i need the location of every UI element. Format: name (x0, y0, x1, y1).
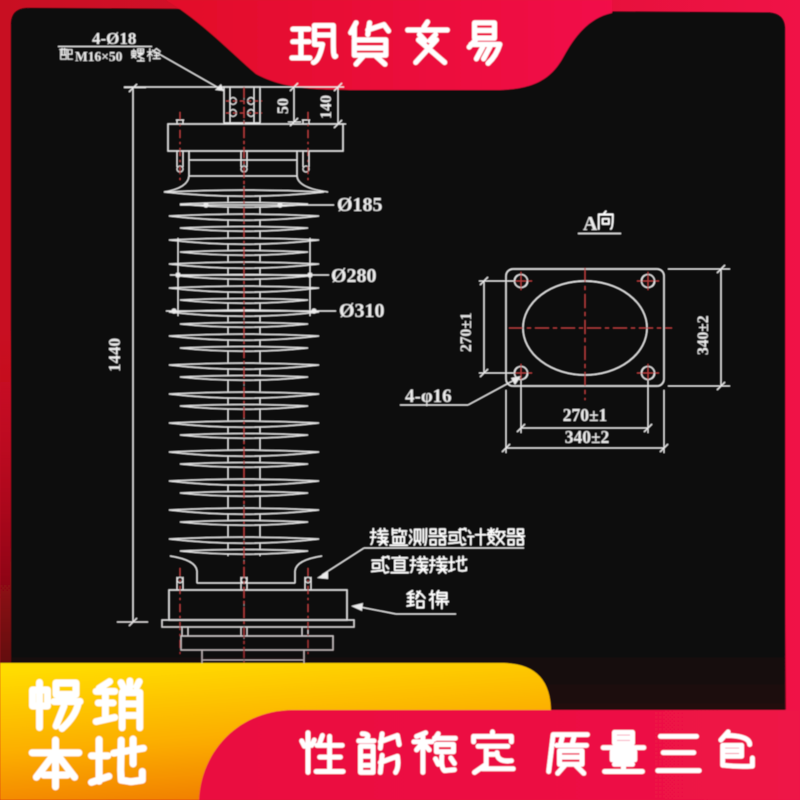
svg-text:140: 140 (318, 95, 335, 119)
svg-text:4-Ø18: 4-Ø18 (92, 29, 136, 48)
svg-text:Ø185: Ø185 (337, 194, 383, 216)
svg-text:270±1: 270±1 (458, 312, 475, 352)
svg-text:M16×50: M16×50 (75, 49, 123, 64)
svg-text:Ø310: Ø310 (339, 300, 385, 322)
svg-text:340±2: 340±2 (695, 315, 712, 355)
svg-text:50: 50 (275, 98, 292, 114)
svg-text:270±1: 270±1 (563, 405, 608, 425)
svg-text:4-φ16: 4-φ16 (405, 386, 452, 407)
svg-text:1440: 1440 (105, 338, 124, 372)
svg-text:340±2: 340±2 (565, 427, 610, 447)
svg-text:Ø280: Ø280 (331, 265, 377, 287)
svg-text:A: A (583, 213, 598, 235)
